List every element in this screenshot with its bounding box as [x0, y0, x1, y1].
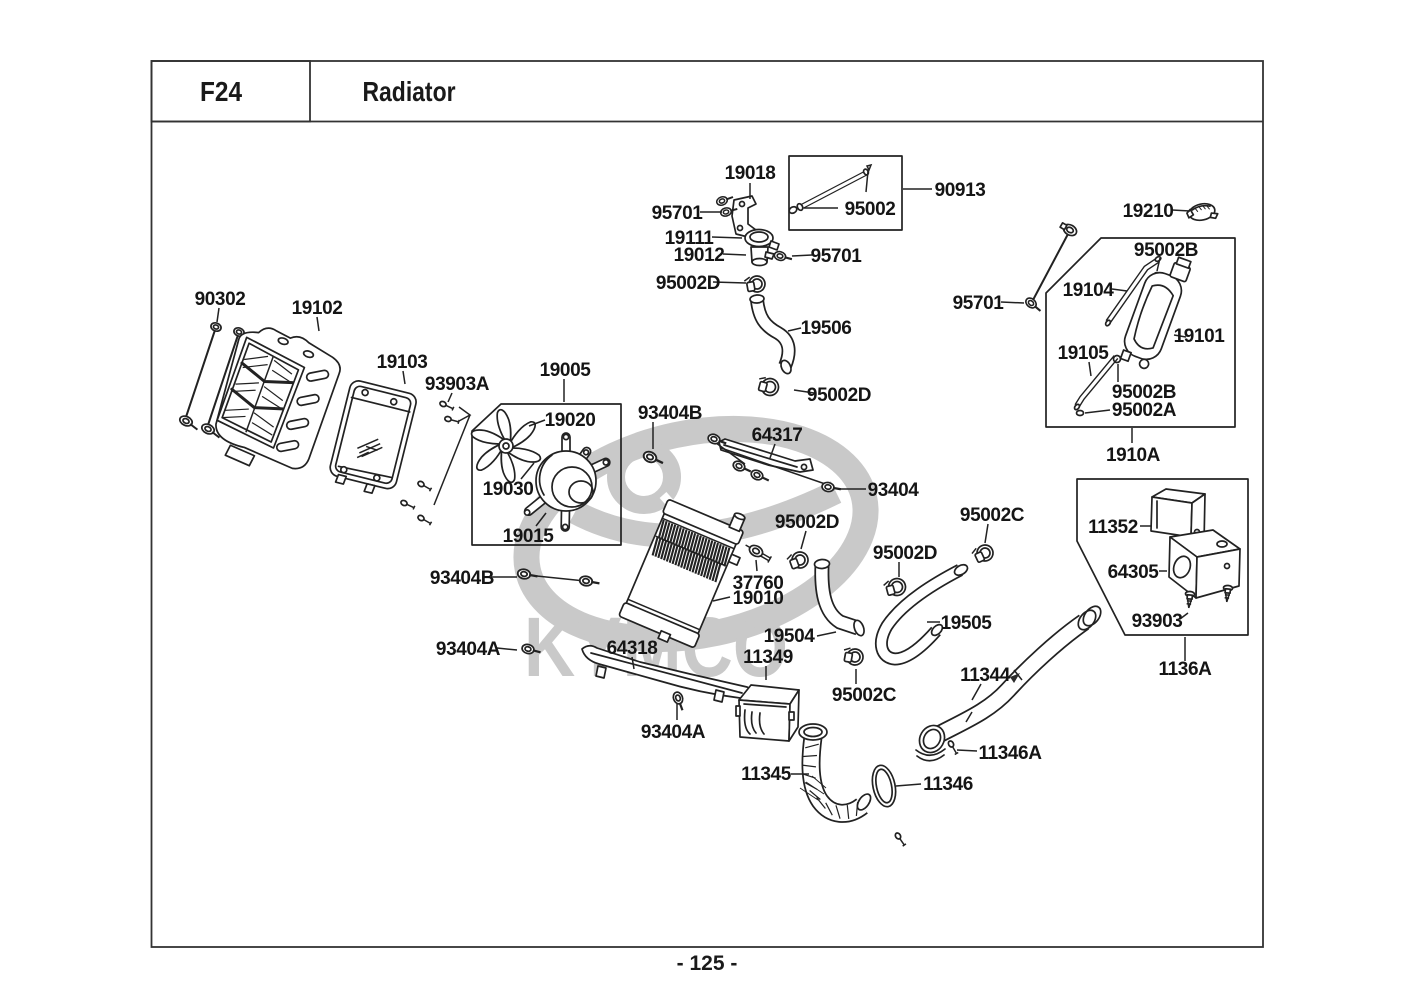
svg-text:19005: 19005: [540, 360, 592, 381]
svg-text:11349: 11349: [743, 647, 793, 668]
svg-text:19012: 19012: [674, 245, 725, 266]
svg-text:19020: 19020: [545, 410, 596, 431]
svg-text:11344: 11344: [960, 665, 1011, 686]
svg-text:F24: F24: [200, 76, 242, 107]
svg-text:1136A: 1136A: [1159, 659, 1213, 680]
svg-text:93404A: 93404A: [641, 722, 706, 743]
svg-text:95701: 95701: [811, 246, 863, 267]
svg-text:19010: 19010: [733, 588, 784, 609]
svg-text:95701: 95701: [953, 293, 1005, 314]
svg-text:95002: 95002: [845, 199, 896, 220]
svg-text:19015: 19015: [503, 526, 555, 547]
svg-text:95002D: 95002D: [656, 273, 720, 294]
svg-text:64305: 64305: [1108, 562, 1160, 583]
svg-text:64317: 64317: [752, 425, 803, 446]
svg-text:19018: 19018: [725, 163, 776, 184]
svg-text:19103: 19103: [377, 352, 428, 373]
svg-text:95002B: 95002B: [1134, 240, 1198, 261]
svg-text:11346A: 11346A: [978, 743, 1042, 764]
svg-text:95002C: 95002C: [960, 505, 1025, 526]
svg-text:1910A: 1910A: [1106, 445, 1161, 466]
svg-text:19105: 19105: [1058, 343, 1110, 364]
svg-text:19101: 19101: [1174, 326, 1226, 347]
svg-text:95002D: 95002D: [873, 543, 937, 564]
svg-text:93404A: 93404A: [436, 639, 501, 660]
svg-text:95002C: 95002C: [832, 685, 897, 706]
svg-text:19030: 19030: [483, 479, 534, 500]
svg-text:- 125 -: - 125 -: [677, 952, 738, 975]
svg-text:19104: 19104: [1063, 280, 1115, 301]
svg-text:11352: 11352: [1088, 517, 1138, 538]
svg-text:95701: 95701: [652, 203, 704, 224]
svg-text:93404B: 93404B: [430, 568, 494, 589]
svg-text:19504: 19504: [764, 626, 816, 647]
svg-text:93903: 93903: [1132, 611, 1183, 632]
svg-text:11346: 11346: [923, 774, 973, 795]
svg-text:93903A: 93903A: [425, 374, 490, 395]
svg-text:11345: 11345: [741, 764, 792, 785]
svg-text:95002A: 95002A: [1112, 400, 1177, 421]
svg-text:Radiator: Radiator: [363, 76, 456, 107]
svg-text:19102: 19102: [292, 298, 343, 319]
svg-text:19210: 19210: [1123, 201, 1174, 222]
svg-text:19505: 19505: [941, 613, 993, 634]
svg-text:19506: 19506: [801, 318, 852, 339]
svg-text:64318: 64318: [607, 638, 658, 659]
svg-text:90302: 90302: [195, 289, 246, 310]
svg-text:95002D: 95002D: [775, 512, 839, 533]
svg-text:90913: 90913: [935, 180, 986, 201]
svg-text:95002D: 95002D: [807, 385, 871, 406]
svg-text:93404B: 93404B: [638, 403, 702, 424]
svg-text:93404: 93404: [868, 480, 920, 501]
